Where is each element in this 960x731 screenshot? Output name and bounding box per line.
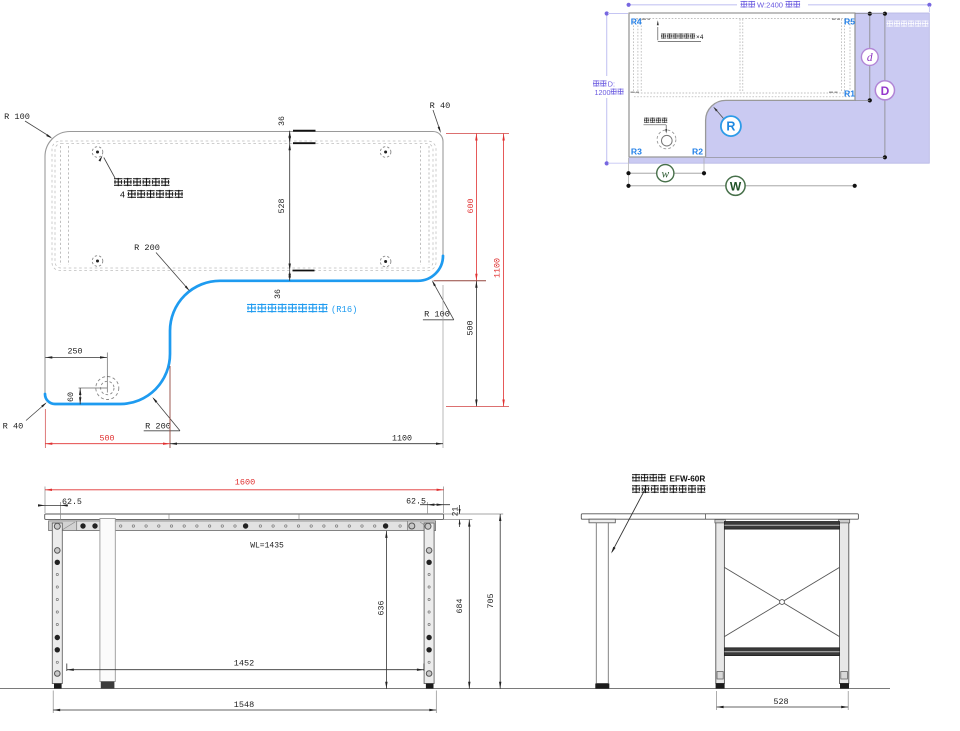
svg-text:528: 528: [773, 697, 788, 707]
svg-text:R: R: [726, 120, 735, 134]
svg-text:R 40: R 40: [3, 422, 24, 432]
svg-text:600: 600: [467, 199, 476, 214]
svg-text:1452: 1452: [234, 658, 254, 668]
svg-text:W:2400: W:2400: [757, 0, 783, 9]
svg-text:R5: R5: [844, 17, 855, 27]
svg-text:R1: R1: [844, 88, 855, 98]
svg-text:705: 705: [487, 594, 496, 609]
svg-text:684: 684: [456, 599, 465, 614]
svg-text:1200: 1200: [595, 88, 611, 97]
svg-text:W: W: [730, 179, 742, 193]
svg-text:36: 36: [278, 116, 287, 126]
svg-text:R 100: R 100: [4, 112, 30, 122]
svg-text:R3: R3: [631, 147, 642, 157]
svg-text:21: 21: [453, 507, 461, 517]
svg-text:528: 528: [278, 199, 287, 214]
svg-text:d: d: [867, 52, 873, 64]
svg-text:500: 500: [467, 321, 476, 336]
svg-text:1548: 1548: [234, 700, 254, 710]
svg-text:R 100: R 100: [424, 309, 450, 319]
svg-text:4: 4: [120, 191, 125, 201]
svg-text:500: 500: [100, 434, 115, 443]
svg-text:EFW-60R: EFW-60R: [670, 474, 706, 483]
svg-text:1100: 1100: [392, 434, 412, 443]
svg-text:62.5: 62.5: [406, 498, 426, 507]
svg-text:D: D: [881, 84, 890, 98]
svg-text:1100: 1100: [494, 258, 503, 278]
svg-text:×4: ×4: [696, 34, 704, 41]
svg-text:636: 636: [377, 601, 386, 616]
svg-text:R 40: R 40: [430, 101, 451, 111]
svg-text:R 200: R 200: [134, 243, 160, 253]
svg-text:R2: R2: [692, 147, 703, 157]
svg-text:62.5: 62.5: [62, 498, 82, 507]
svg-text:250: 250: [68, 347, 83, 356]
svg-text:36: 36: [274, 289, 283, 299]
svg-text:(R16): (R16): [331, 305, 357, 315]
svg-text:R 200: R 200: [145, 422, 171, 432]
svg-text:WL=1435: WL=1435: [250, 542, 284, 551]
svg-text:1600: 1600: [235, 477, 255, 487]
svg-text:60: 60: [67, 392, 76, 402]
svg-text:R4: R4: [631, 17, 642, 27]
svg-text:w: w: [661, 168, 669, 180]
